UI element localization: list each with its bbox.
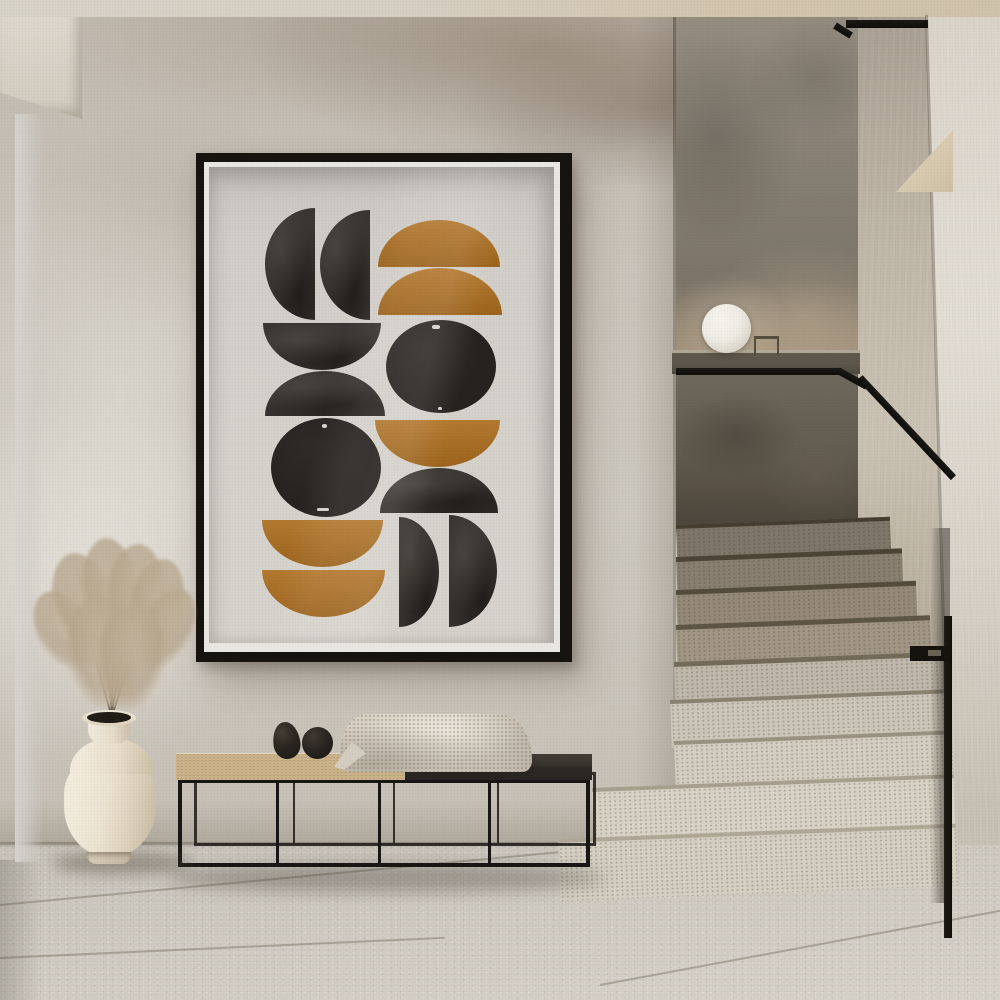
door-floor-reflection: [0, 860, 42, 1000]
upper-handrail: [846, 20, 928, 28]
bench-leg: [276, 783, 279, 863]
vase-foot: [87, 852, 131, 864]
bench-leg: [488, 783, 491, 863]
door-frame-edge: [0, 114, 15, 864]
bench-floor-shadow: [168, 864, 604, 892]
sphere-lamp: [702, 304, 751, 353]
bench-frame-front: [178, 779, 590, 867]
door-glass-pane: [15, 114, 43, 862]
knit-blanket: [340, 714, 532, 772]
handrail-bracket-notch: [928, 650, 941, 656]
art-frame: [196, 153, 572, 662]
ceiling-band: [0, 0, 1000, 18]
ledge-decor-stand: [754, 336, 779, 355]
art-print: [209, 167, 554, 643]
interior-scene: [0, 0, 1000, 1000]
bench-leg: [378, 783, 381, 863]
landing-handrail: [676, 368, 842, 375]
handrail-post: [944, 616, 952, 938]
frame-glass-sheen: [209, 167, 554, 643]
vase-opening: [87, 712, 131, 723]
stair-parapet: [676, 374, 858, 532]
